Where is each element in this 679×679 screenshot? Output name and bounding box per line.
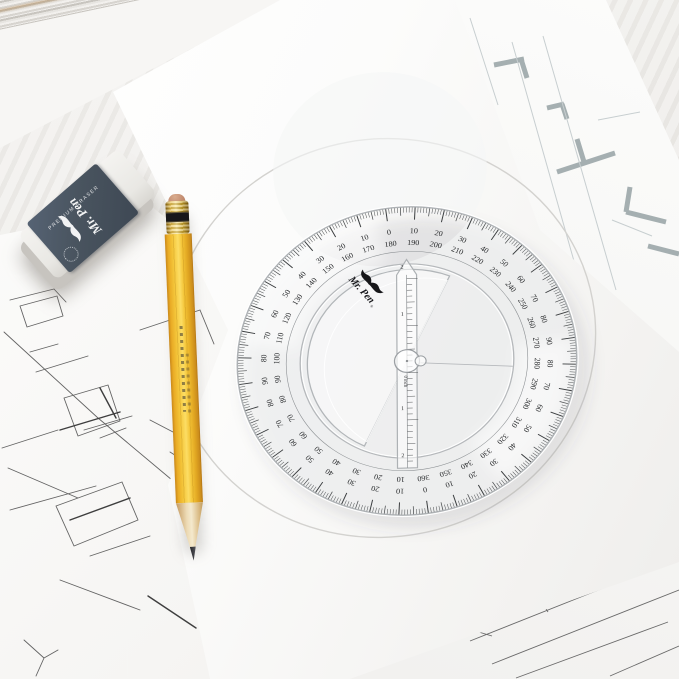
pencil-wood-tip	[176, 502, 205, 550]
pencil-ferrule-band	[166, 212, 189, 223]
product-photo-scene: 0180101902020030210402205023060240702508…	[0, 0, 679, 679]
pencil-ferrule	[165, 201, 189, 235]
eraser: Mr. Pen PREMIUM ERASER	[4, 148, 174, 298]
pencil-imprint	[186, 354, 192, 414]
pencil-graphite-point	[190, 547, 197, 561]
pencil-imprint	[180, 326, 187, 412]
eraser-badge-icon	[61, 244, 82, 265]
